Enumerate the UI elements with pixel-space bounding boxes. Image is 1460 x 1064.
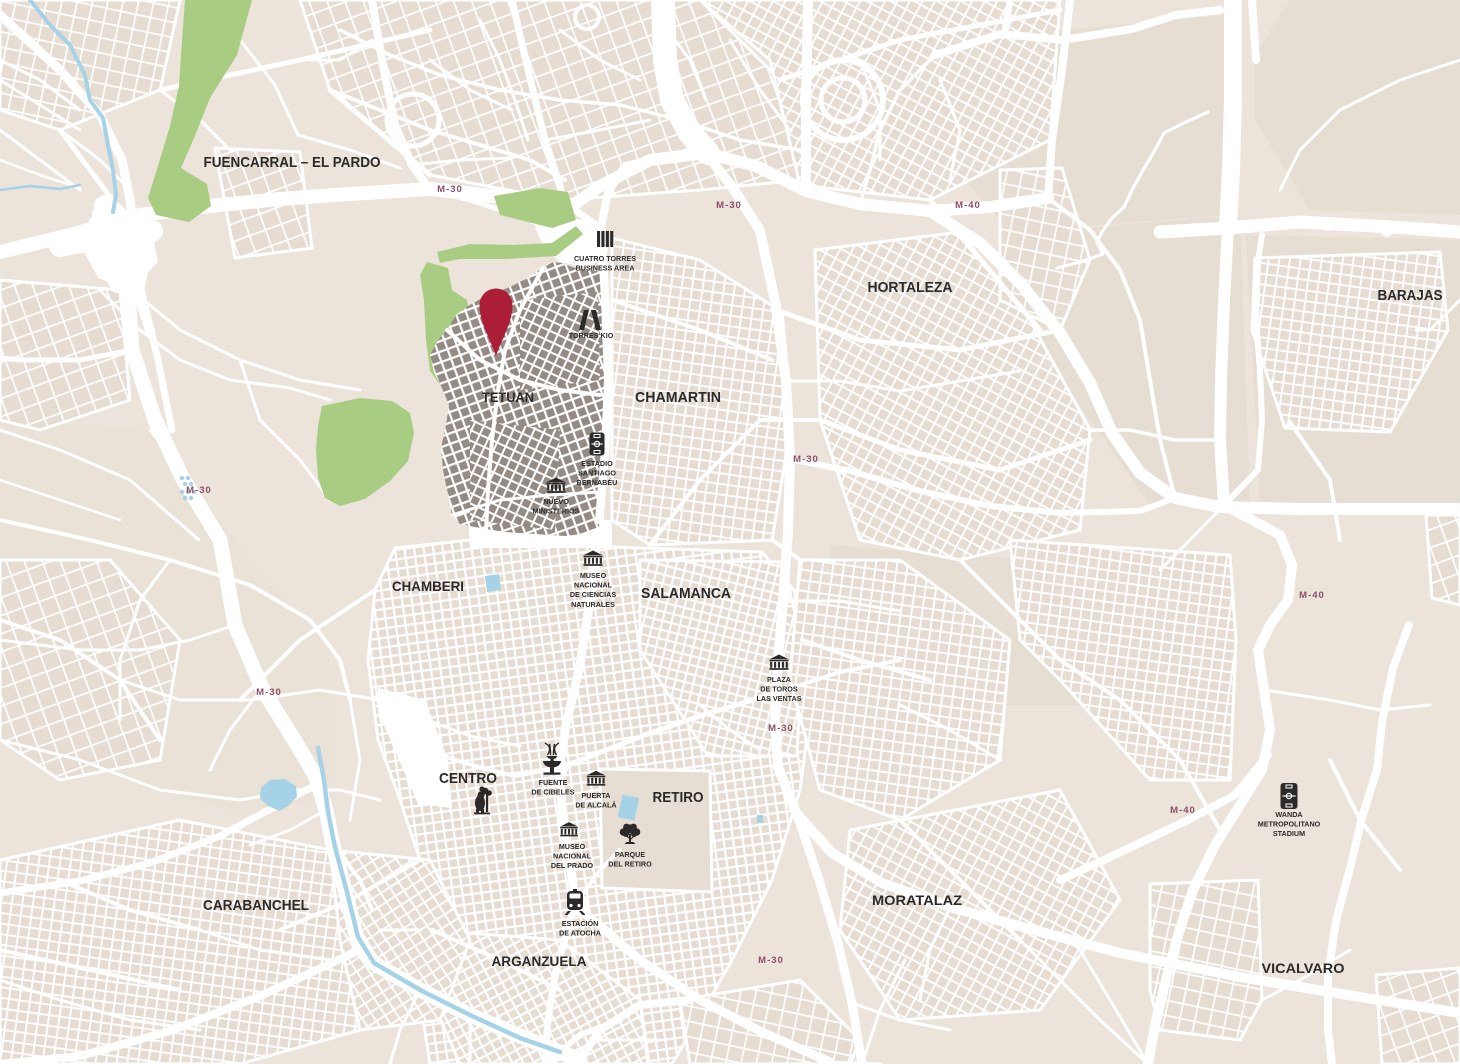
svg-text:WANDA: WANDA [1275, 810, 1302, 819]
svg-text:SANTIAGO: SANTIAGO [578, 469, 616, 478]
svg-text:M-30: M-30 [793, 454, 819, 465]
svg-text:BERNABÉU: BERNABÉU [577, 478, 618, 487]
svg-text:MUSEO: MUSEO [580, 571, 607, 580]
svg-text:MINISTERIOS: MINISTERIOS [533, 507, 580, 516]
svg-text:M-30: M-30 [768, 723, 794, 734]
svg-text:ESTADIO: ESTADIO [581, 459, 613, 468]
svg-text:CHAMARTIN: CHAMARTIN [635, 389, 721, 406]
svg-text:PARQUE: PARQUE [615, 850, 645, 859]
svg-text:M-40: M-40 [1170, 805, 1196, 816]
svg-text:STADIUM: STADIUM [1273, 829, 1305, 838]
svg-text:CARABANCHEL: CARABANCHEL [203, 897, 309, 914]
svg-text:M-30: M-30 [186, 485, 212, 496]
svg-text:TETUAN: TETUAN [482, 389, 534, 405]
svg-text:NACIONAL: NACIONAL [574, 581, 613, 590]
svg-text:DE CIENCIAS: DE CIENCIAS [570, 590, 617, 599]
svg-text:DE CIBELES: DE CIBELES [531, 788, 574, 797]
svg-text:ARGANZUELA: ARGANZUELA [492, 953, 587, 969]
svg-text:M-30: M-30 [437, 184, 463, 195]
svg-text:LAS VENTAS: LAS VENTAS [757, 694, 802, 703]
svg-text:NACIONAL: NACIONAL [553, 852, 592, 861]
svg-text:ESTACIÓN: ESTACIÓN [562, 919, 599, 928]
svg-text:NATURALES: NATURALES [571, 600, 615, 609]
svg-text:SALAMANCA: SALAMANCA [641, 585, 731, 602]
svg-text:PLAZA: PLAZA [767, 675, 791, 684]
svg-text:NUEVO: NUEVO [543, 497, 569, 506]
svg-text:MORATALAZ: MORATALAZ [872, 892, 962, 908]
svg-text:DE ATOCHA: DE ATOCHA [559, 929, 601, 938]
svg-text:M-30: M-30 [758, 955, 784, 966]
svg-text:M-40: M-40 [1299, 590, 1325, 601]
svg-text:DE ALCALÁ: DE ALCALÁ [575, 801, 616, 810]
svg-text:BARAJAS: BARAJAS [1378, 287, 1443, 304]
svg-text:M-40: M-40 [955, 200, 981, 211]
svg-text:MUSEO: MUSEO [559, 842, 586, 851]
svg-text:M-30: M-30 [716, 200, 742, 211]
svg-text:FUENCARRAL – EL PARDO: FUENCARRAL – EL PARDO [204, 154, 381, 171]
svg-text:BUSINESS AREA: BUSINESS AREA [576, 264, 635, 273]
svg-text:PUERTA: PUERTA [581, 791, 610, 800]
svg-text:VICALVARO: VICALVARO [1262, 960, 1345, 976]
svg-text:FUENTE: FUENTE [539, 778, 568, 787]
svg-text:DE TOROS: DE TOROS [760, 685, 798, 694]
svg-text:CUATRO TORRES: CUATRO TORRES [574, 254, 636, 263]
svg-text:TORRES KIO: TORRES KIO [569, 331, 614, 340]
svg-text:HORTALEZA: HORTALEZA [868, 279, 953, 296]
svg-text:DEL RETIRO: DEL RETIRO [608, 860, 652, 869]
svg-text:METROPOLITANO: METROPOLITANO [1258, 820, 1321, 829]
svg-text:CHAMBERI: CHAMBERI [392, 578, 464, 594]
svg-text:M-30: M-30 [256, 687, 282, 698]
svg-text:CENTRO: CENTRO [439, 770, 497, 787]
svg-text:RETIRO: RETIRO [653, 789, 704, 806]
svg-text:DEL PRADO: DEL PRADO [551, 861, 594, 870]
